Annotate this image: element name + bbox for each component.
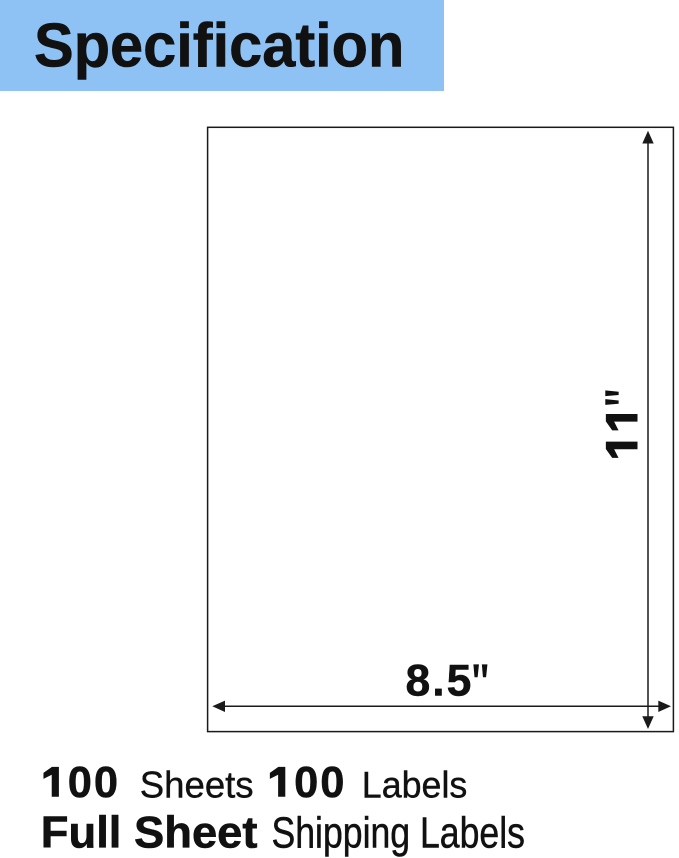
svg-text:8.5: 8.5 [406,657,474,706]
svg-text:Full Sheet: Full Sheet [41,807,258,858]
svg-text:Labels: Labels [362,764,468,806]
svg-text:Shipping Labels: Shipping Labels [272,809,525,857]
svg-text:00: 00 [68,759,120,807]
svg-text:Specification: Specification [34,10,404,79]
svg-text:Sheets: Sheets [140,763,254,806]
svg-text:00: 00 [294,759,346,807]
